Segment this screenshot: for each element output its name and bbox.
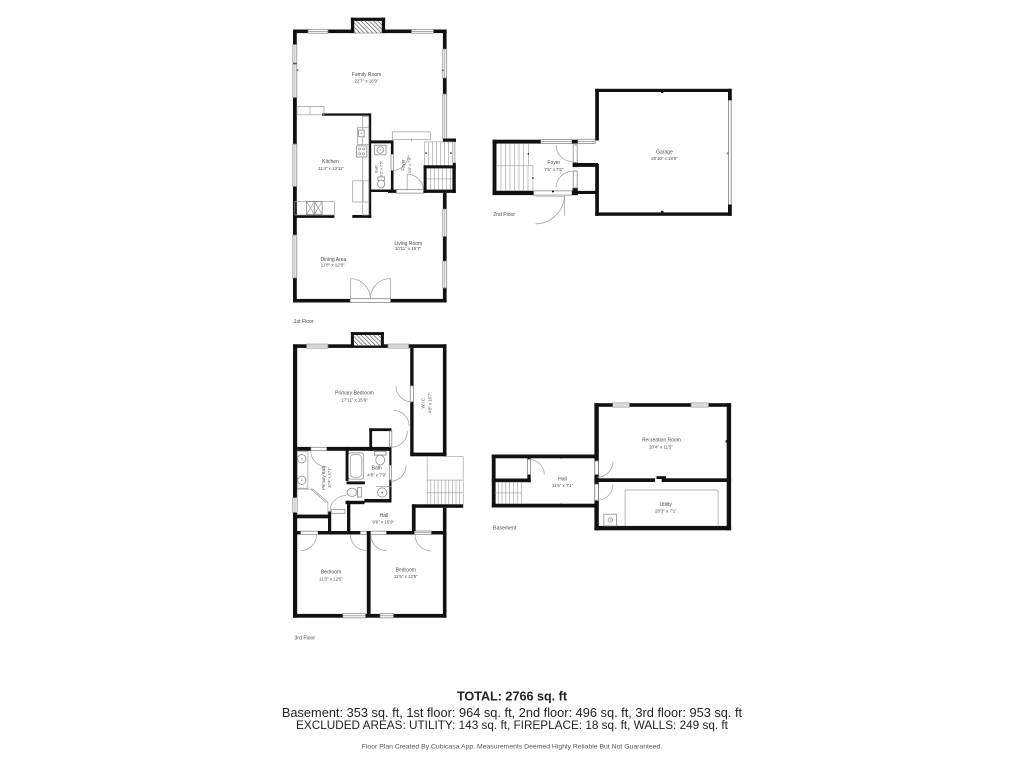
svg-text:Basement: 353 sq. ft, 1st floo: Basement: 353 sq. ft, 1st floor: 964 sq.… [282,705,743,720]
svg-text:Family Room: Family Room [352,72,381,78]
svg-text:Foyer: Foyer [400,159,405,171]
svg-text:17'11" x 15'8": 17'11" x 15'8" [341,398,368,403]
svg-text:Bedroom: Bedroom [396,568,416,574]
svg-text:4'8" x 7'9": 4'8" x 7'9" [367,472,387,477]
svg-text:Kitchen: Kitchen [322,159,339,165]
svg-text:Hall: Hall [558,476,567,482]
svg-text:11'5" x 12'5": 11'5" x 12'5" [394,574,418,579]
svg-text:Foyer: Foyer [547,160,560,166]
svg-text:2nd Floor: 2nd Floor [493,212,515,218]
svg-text:20'10" x 18'9": 20'10" x 18'9" [651,156,678,161]
svg-text:Bath: Bath [372,465,383,471]
svg-text:20'3" x 7'1": 20'3" x 7'1" [655,509,677,514]
svg-text:TOTAL: 2766 sq. ft: TOTAL: 2766 sq. ft [457,690,568,704]
svg-text:9'9" x 15'9": 9'9" x 15'9" [372,520,394,525]
svg-text:EXCLUDED AREAS: UTILITY: 143 s: EXCLUDED AREAS: UTILITY: 143 sq. ft, FIR… [296,719,729,732]
svg-text:Primary Bedroom: Primary Bedroom [335,391,374,397]
svg-text:3rd Floor: 3rd Floor [294,635,315,641]
svg-text:Floor Plan Created By Cubicasa: Floor Plan Created By Cubicasa App. Meas… [362,744,663,751]
svg-text:1st Floor: 1st Floor [294,319,314,325]
svg-text:11'4" x 13'11": 11'4" x 13'11" [318,166,344,171]
svg-text:Utility: Utility [660,502,673,508]
svg-text:11'6" x 7'1": 11'6" x 7'1" [552,483,574,488]
svg-text:3'2" x 7'5": 3'2" x 7'5" [379,160,383,177]
svg-text:10'4" x 10'3": 10'4" x 10'3" [327,467,331,488]
svg-text:5'8" x 7'9": 5'8" x 7'9" [408,156,412,173]
svg-text:22'7" x 16'9": 22'7" x 16'9" [354,79,379,84]
svg-text:W.I.C.: W.I.C. [421,397,426,408]
svg-text:Hall: Hall [380,513,389,519]
svg-text:10'11" x 16'7": 10'11" x 16'7" [395,246,422,251]
svg-text:Bedroom: Bedroom [321,569,341,575]
svg-text:Recreation Room: Recreation Room [642,438,681,444]
svg-text:11'3" x 12'5": 11'3" x 12'5" [319,576,343,581]
svg-text:Bath: Bath [374,165,378,172]
svg-text:Garage: Garage [656,149,673,155]
svg-text:11'8" x 12'8": 11'8" x 12'8" [321,263,345,268]
svg-text:Basement: Basement [493,526,517,532]
svg-text:Primary Bath: Primary Bath [321,465,326,490]
svg-text:7'6" x 7'6": 7'6" x 7'6" [544,167,564,172]
svg-text:20'4" x 11'5": 20'4" x 11'5" [649,445,673,450]
svg-text:4'8" x 16'7": 4'8" x 16'7" [428,392,433,413]
